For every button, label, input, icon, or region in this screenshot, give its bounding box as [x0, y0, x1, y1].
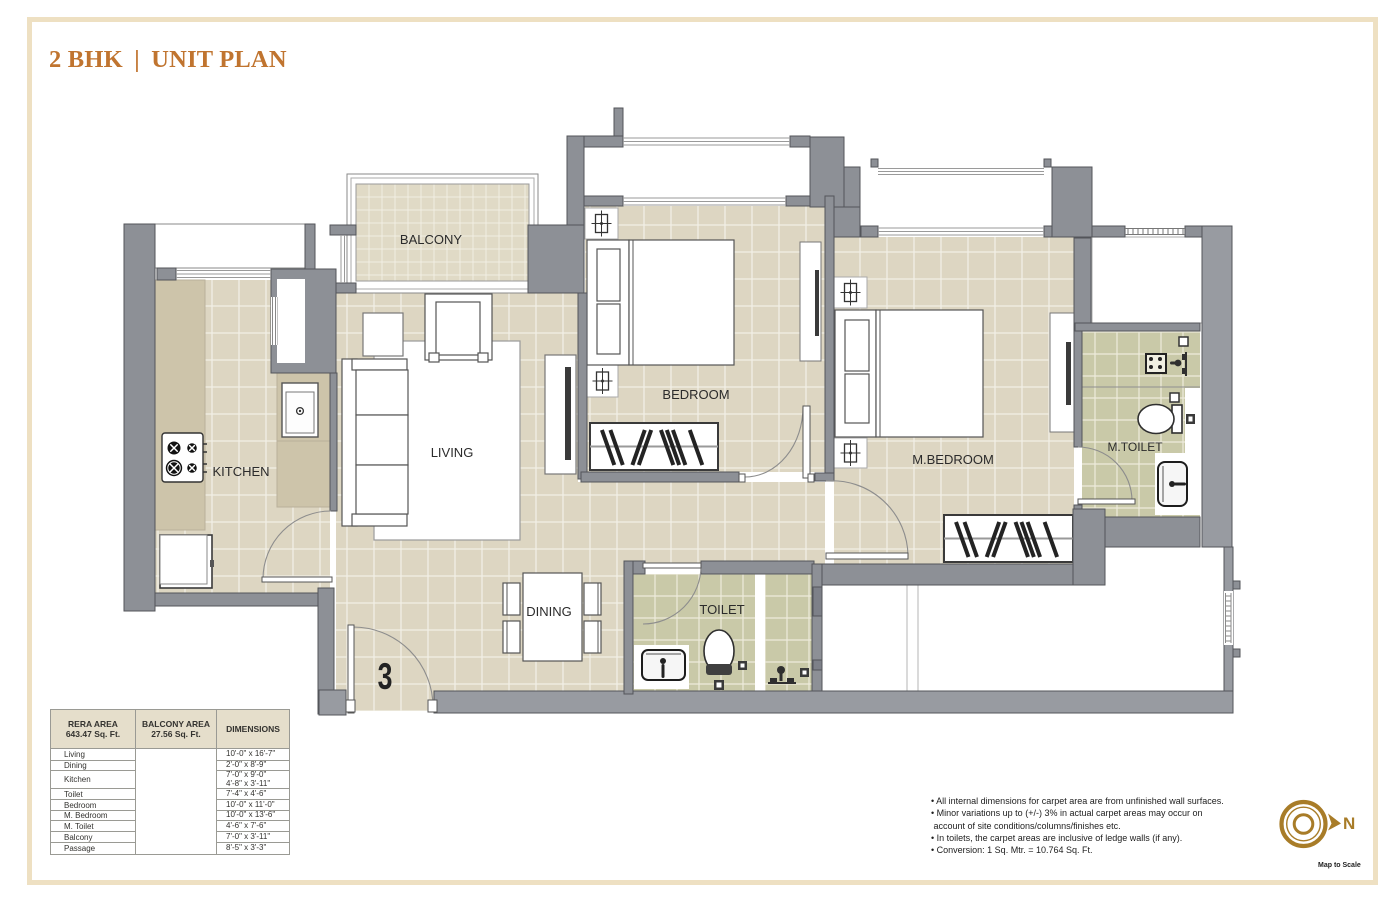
svg-text:BALCONY: BALCONY: [400, 232, 462, 247]
svg-text:N: N: [1343, 814, 1355, 833]
svg-text:M.BEDROOM: M.BEDROOM: [912, 452, 994, 467]
svg-text:TOILET: TOILET: [699, 602, 744, 617]
svg-text:BEDROOM: BEDROOM: [662, 387, 729, 402]
svg-text:M.TOILET: M.TOILET: [1107, 440, 1163, 454]
svg-text:LIVING: LIVING: [431, 445, 474, 460]
svg-text:3: 3: [378, 656, 393, 697]
svg-text:DINING: DINING: [526, 604, 572, 619]
svg-text:KITCHEN: KITCHEN: [212, 464, 269, 479]
